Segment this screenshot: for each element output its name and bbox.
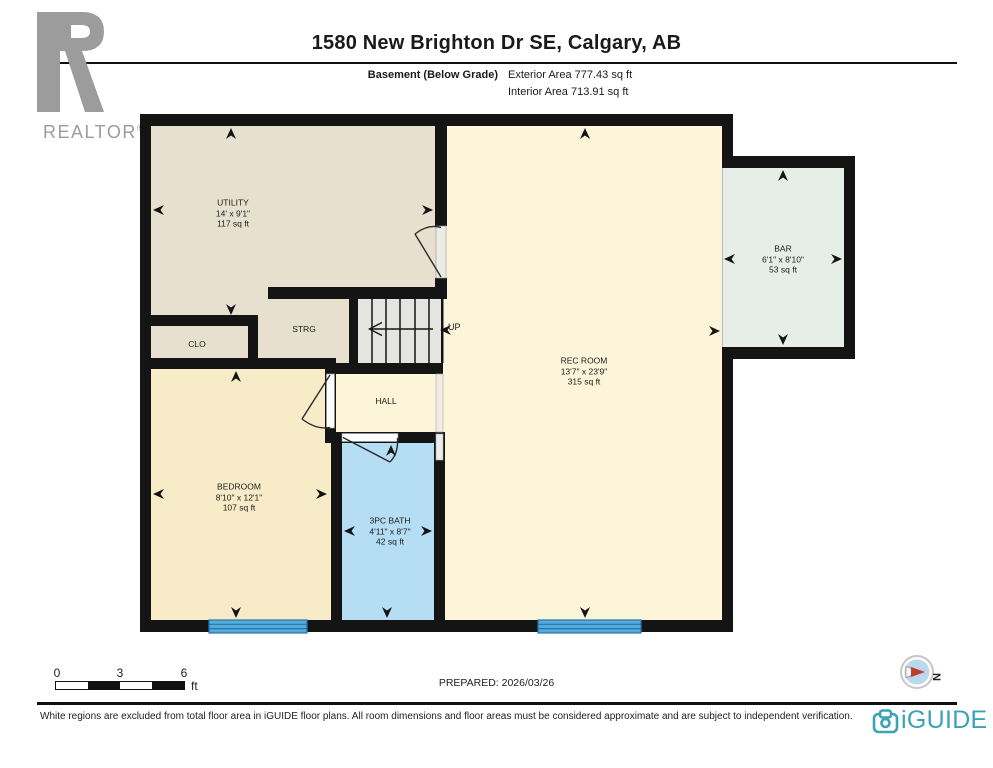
room-area: 315 sq ft (561, 376, 608, 387)
wall-left (140, 114, 151, 632)
wall-clo-top (140, 315, 258, 326)
room-area: 53 sq ft (762, 264, 804, 275)
room-dims: 4'11" x 8'7" (369, 526, 410, 537)
room-label-bath: 3PC BATH 4'11" x 8'7" 42 sq ft (369, 515, 410, 547)
compass-icon (898, 653, 936, 691)
wall-utility-right-upper (435, 126, 447, 226)
room-fills (151, 126, 844, 621)
room-name: BEDROOM (216, 481, 263, 492)
wall-right-lower (722, 347, 733, 632)
bath-right-jamb (436, 434, 443, 460)
wall-bedroom-top (140, 358, 336, 369)
wall-bar-top (722, 156, 855, 168)
room-label-bedroom: BEDROOM 8'10" x 12'1" 107 sq ft (216, 481, 263, 513)
prepared-date: PREPARED: 2026/03/26 (0, 677, 993, 689)
bath-door-opening (342, 434, 398, 442)
iguide-camera-icon (872, 709, 900, 735)
room-name: REC ROOM (561, 355, 608, 366)
room-label-clo: CLO (188, 339, 205, 350)
hall-rec-opening (436, 374, 443, 432)
room-area: 117 sq ft (216, 218, 250, 229)
footer-divider (37, 702, 957, 705)
wall-bar-bottom (722, 347, 855, 359)
room-name: BAR (762, 243, 804, 254)
room-name: 3PC BATH (369, 515, 410, 526)
room-label-strg: STRG (292, 324, 316, 335)
wall-top (140, 114, 733, 126)
wall-bedroom-bath-divider (331, 432, 342, 621)
wall-stairs-bottom (336, 363, 443, 374)
room-dims: 6'1" x 8'10" (762, 254, 804, 265)
iguide-wordmark: iGUIDE (901, 706, 988, 735)
room-dims: 13'7" x 23'9" (561, 366, 608, 377)
room-label-hall: HALL (375, 396, 396, 407)
room-area: 107 sq ft (216, 502, 263, 513)
wall-stairs-left (349, 287, 358, 374)
room-area: 42 sq ft (369, 536, 410, 547)
room-name: UTILITY (216, 197, 250, 208)
compass-north-label: N (930, 673, 942, 681)
rec-room-window (538, 620, 641, 633)
room-dims: 14' x 9'1" (216, 208, 250, 219)
room-label-rec-room: REC ROOM 13'7" x 23'9" 315 sq ft (561, 355, 608, 387)
wall-bar-right (844, 156, 855, 359)
room-label-bar: BAR 6'1" x 8'10" 53 sq ft (762, 243, 804, 275)
stairs-up-label: UP (448, 322, 461, 332)
floor-plan (0, 0, 993, 768)
footer-disclaimer: White regions are excluded from total fl… (40, 711, 853, 722)
wall-bath-right (434, 432, 445, 621)
room-dims: 8'10" x 12'1" (216, 492, 263, 503)
floor-plan-page: REALTOR® 1580 New Brighton Dr SE, Calgar… (0, 0, 993, 768)
bedroom-door-opening (327, 374, 335, 428)
bedroom-window (209, 620, 307, 633)
room-label-utility: UTILITY 14' x 9'1" 117 sq ft (216, 197, 250, 229)
